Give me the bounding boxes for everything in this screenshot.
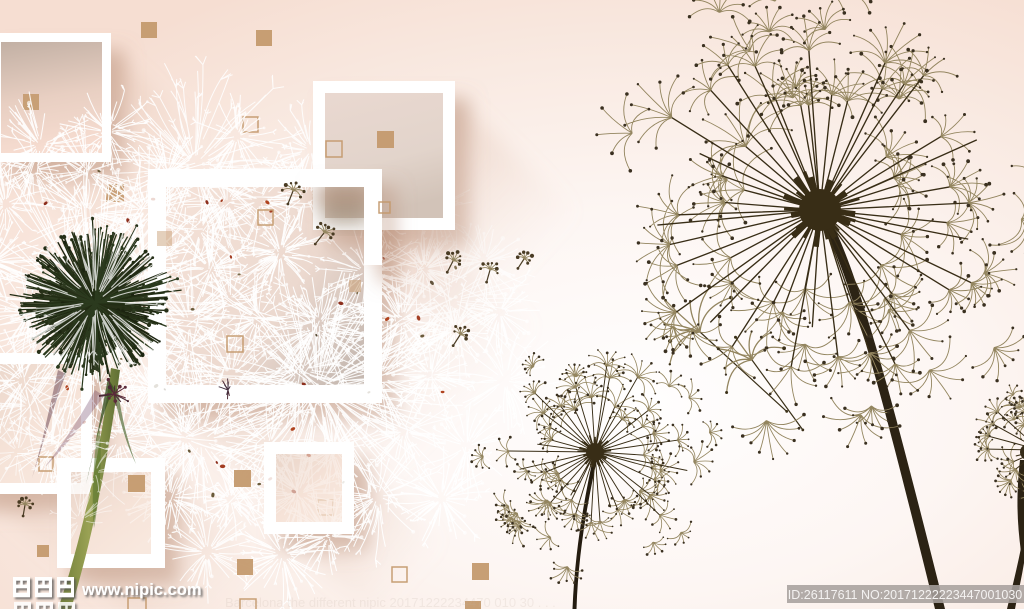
svg-text:www.nipic.com: www.nipic.com [81,581,202,599]
svg-text:ID:26117611 NO:201712222234470: ID:26117611 NO:20171222223447001030 [788,588,1023,602]
svg-text:Barcelona the different nipic: Barcelona the different nipic 2017122223… [225,595,556,609]
